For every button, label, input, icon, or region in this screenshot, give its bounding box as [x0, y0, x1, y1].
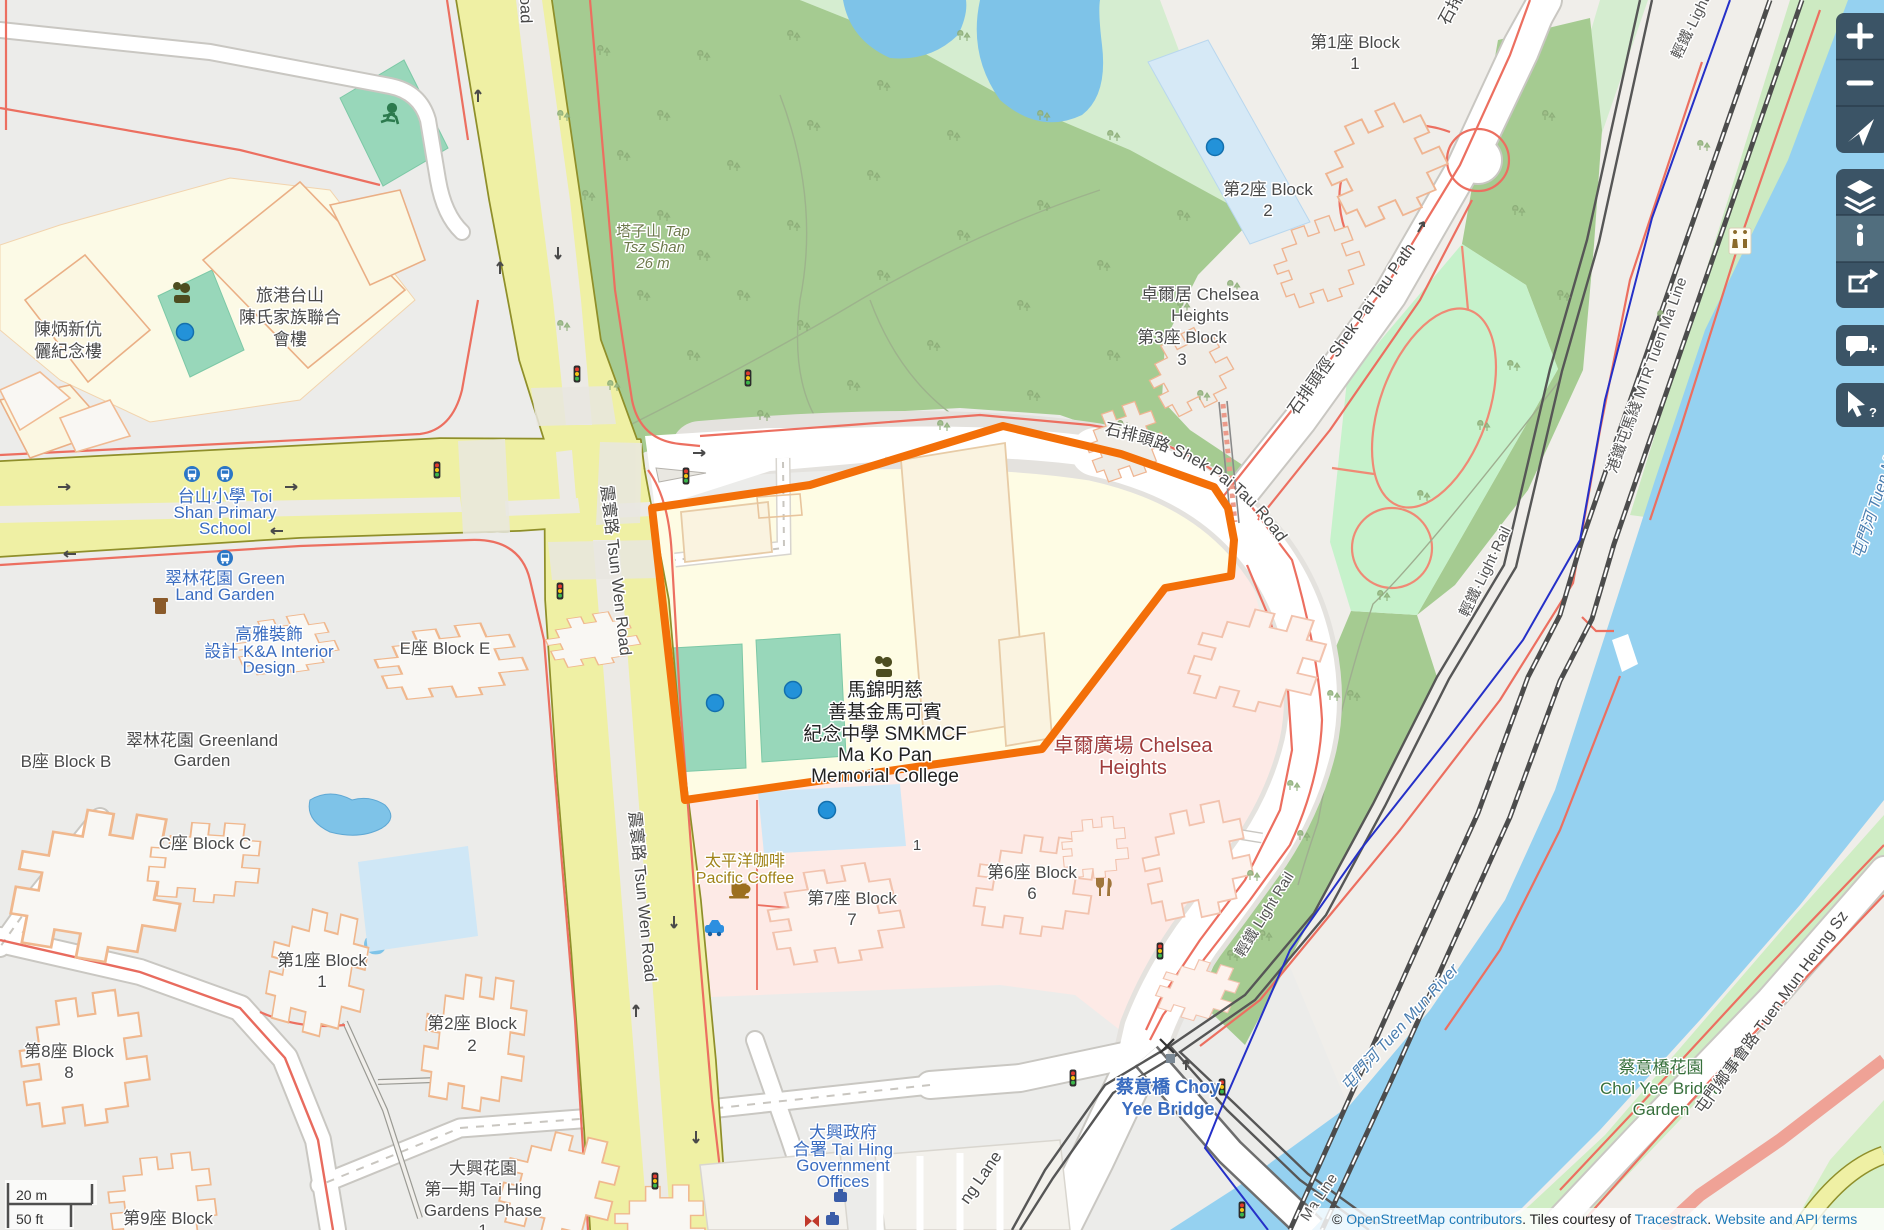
svg-text:School: School — [199, 519, 251, 538]
svg-text:第一期 Tai Hing: 第一期 Tai Hing — [424, 1180, 541, 1199]
svg-text:第3座 Block: 第3座 Block — [1137, 328, 1227, 347]
svg-text:卓爾廣場 Chelsea: 卓爾廣場 Chelsea — [1054, 734, 1214, 757]
svg-text:Garden: Garden — [174, 751, 231, 770]
svg-text:oad: oad — [516, 0, 535, 24]
svg-text:儷紀念樓: 儷紀念樓 — [34, 341, 102, 361]
svg-text:50 ft: 50 ft — [16, 1211, 43, 1227]
svg-text:3: 3 — [1177, 350, 1186, 369]
svg-text:Heights: Heights — [1099, 757, 1167, 779]
svg-text:第2座 Block: 第2座 Block — [427, 1014, 517, 1033]
svg-text:Garden: Garden — [1633, 1100, 1690, 1119]
svg-text:Memorial College: Memorial College — [811, 766, 959, 787]
svg-text:Design: Design — [243, 658, 296, 677]
svg-text:1: 1 — [913, 837, 921, 854]
svg-text:會樓: 會樓 — [273, 330, 307, 349]
svg-text:大興花園: 大興花園 — [449, 1159, 517, 1178]
svg-text:蔡意橋 Choy: 蔡意橋 Choy — [1115, 1076, 1220, 1097]
svg-text:第9座 Block: 第9座 Block — [123, 1209, 213, 1228]
svg-text:B座 Block B: B座 Block B — [21, 752, 112, 771]
svg-text:6: 6 — [1027, 884, 1036, 903]
svg-text:蔡意橋花園: 蔡意橋花園 — [1619, 1058, 1704, 1077]
svg-text:第2座 Block: 第2座 Block — [1223, 180, 1313, 199]
svg-text:Offices: Offices — [817, 1172, 870, 1191]
svg-text:1: 1 — [1350, 54, 1359, 73]
svg-text:翠林花園 Greenland: 翠林花園 Greenland — [126, 731, 278, 750]
svg-text:第1座 Block: 第1座 Block — [277, 951, 367, 970]
svg-text:8: 8 — [64, 1063, 73, 1082]
svg-text:陳炳新伉: 陳炳新伉 — [34, 320, 102, 339]
svg-text:C座 Block C: C座 Block C — [159, 834, 252, 853]
svg-text:© OpenStreetMap contributors.: © OpenStreetMap contributors. Tiles cour… — [1332, 1211, 1857, 1227]
svg-text:1: 1 — [478, 1221, 487, 1230]
svg-text:2: 2 — [1263, 201, 1272, 220]
svg-text:第7座 Block: 第7座 Block — [807, 889, 897, 908]
svg-text:Gardens Phase: Gardens Phase — [424, 1201, 542, 1220]
svg-text:第6座 Block: 第6座 Block — [987, 863, 1077, 882]
svg-text:旅港台山: 旅港台山 — [256, 286, 324, 305]
svg-text:Pacific Coffee: Pacific Coffee — [696, 870, 795, 887]
svg-text:26 m: 26 m — [635, 255, 669, 272]
svg-text:7: 7 — [847, 910, 856, 929]
svg-text:Land Garden: Land Garden — [175, 585, 274, 604]
svg-text:馬錦明慈: 馬錦明慈 — [847, 679, 923, 701]
svg-text:卓爾居 Chelsea: 卓爾居 Chelsea — [1141, 285, 1260, 304]
svg-text:Heights: Heights — [1171, 306, 1229, 325]
svg-text:紀念中學 SMKMCF: 紀念中學 SMKMCF — [803, 722, 967, 745]
svg-text:E座 Block E: E座 Block E — [400, 639, 491, 658]
svg-text:Tsz Shan: Tsz Shan — [623, 239, 685, 256]
svg-text:太平洋咖啡: 太平洋咖啡 — [705, 852, 785, 870]
svg-text:陳氏家族聯合: 陳氏家族聯合 — [239, 308, 341, 327]
svg-text:第8座 Block: 第8座 Block — [24, 1042, 114, 1061]
svg-text:Ma Ko Pan: Ma Ko Pan — [838, 745, 932, 766]
svg-text:?: ? — [1869, 405, 1877, 420]
svg-text:善基金馬可賓: 善基金馬可賓 — [828, 701, 942, 723]
svg-text:第1座 Block: 第1座 Block — [1310, 33, 1400, 52]
svg-text:1: 1 — [317, 972, 326, 991]
svg-text:塔子山 Tap: 塔子山 Tap — [616, 223, 690, 240]
svg-text:Yee Bridge: Yee Bridge — [1121, 1099, 1214, 1119]
svg-text:20 m: 20 m — [16, 1187, 47, 1203]
svg-text:2: 2 — [467, 1036, 476, 1055]
